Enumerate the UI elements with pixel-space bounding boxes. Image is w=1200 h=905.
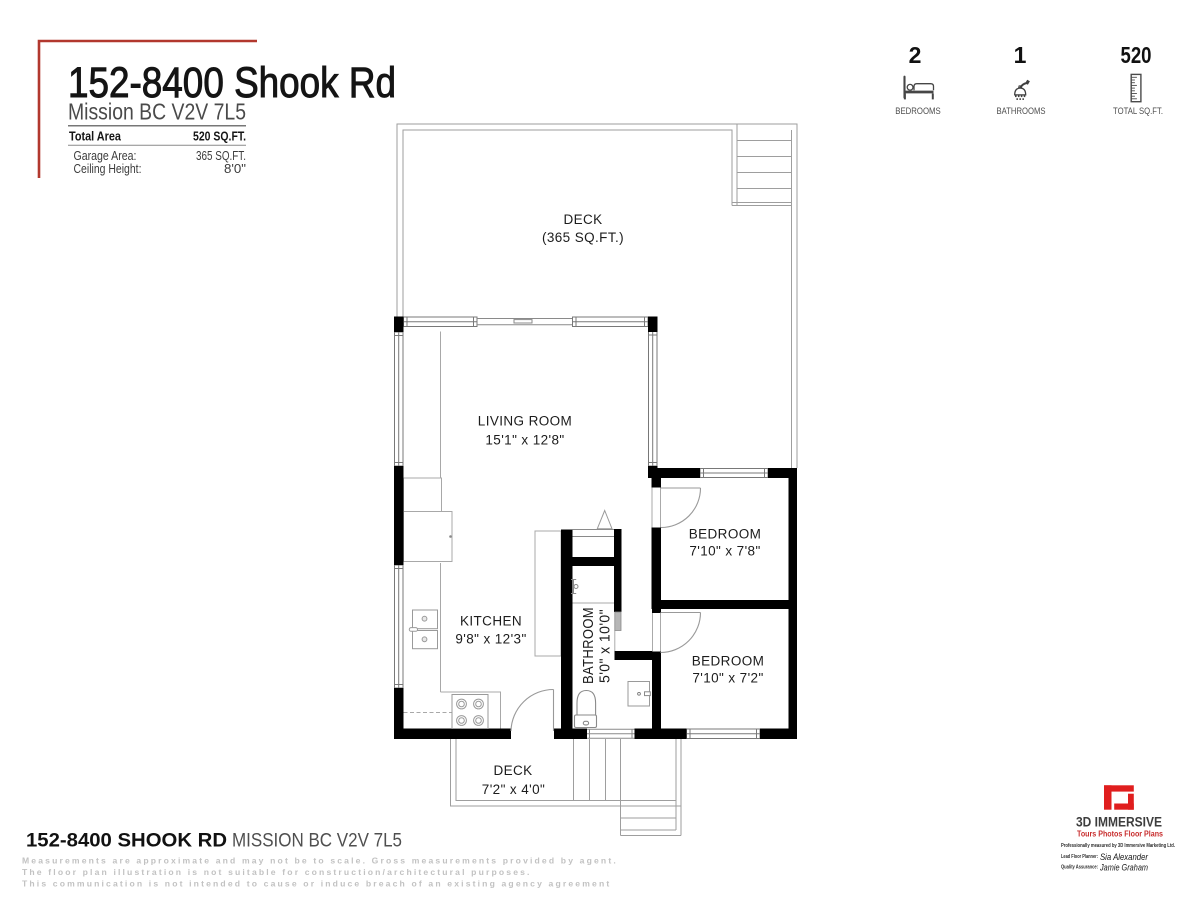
svg-text:520 SQ.FT.: 520 SQ.FT. [193, 130, 246, 144]
svg-text:LIVING ROOM: LIVING ROOM [478, 414, 572, 429]
svg-text:DECK: DECK [563, 212, 602, 227]
svg-text:TOTAL SQ.FT.: TOTAL SQ.FT. [1113, 106, 1163, 116]
svg-text:Measurements are approximate a: Measurements are approximate and may not… [22, 856, 618, 866]
svg-text:KITCHEN: KITCHEN [460, 614, 522, 629]
svg-text:7'10" x 7'2": 7'10" x 7'2" [692, 671, 763, 686]
svg-text:3D IMMERSIVE: 3D IMMERSIVE [1076, 815, 1162, 830]
svg-text:BEDROOM: BEDROOM [692, 654, 765, 669]
svg-text:15'1" x 12'8": 15'1" x 12'8" [485, 433, 564, 448]
svg-text:7'2" x 4'0": 7'2" x 4'0" [482, 782, 545, 797]
svg-text:(365 SQ.FT.): (365 SQ.FT.) [542, 230, 624, 245]
svg-text:The floor plan illustration is: The floor plan illustration is not suita… [22, 867, 532, 877]
svg-text:5'0" x 10'0": 5'0" x 10'0" [598, 609, 614, 683]
svg-text:2: 2 [909, 42, 922, 68]
svg-text:This communication is not inte: This communication is not intended to ca… [22, 879, 611, 889]
svg-text:BEDROOMS: BEDROOMS [895, 106, 941, 116]
svg-text:Mission BC V2V 7L5: Mission BC V2V 7L5 [68, 99, 246, 125]
svg-text:8'0": 8'0" [224, 162, 246, 176]
svg-text:7'10" x 7'8": 7'10" x 7'8" [689, 544, 760, 559]
svg-text:BATHROOMS: BATHROOMS [997, 106, 1046, 116]
svg-text:Sia Alexander: Sia Alexander [1100, 852, 1149, 862]
svg-text:BATHROOM: BATHROOM [581, 607, 597, 684]
svg-text:DECK: DECK [493, 763, 532, 778]
svg-text:Tours Photos Floor Plans: Tours Photos Floor Plans [1077, 830, 1163, 839]
svg-text:Quality Assurance:: Quality Assurance: [1061, 865, 1098, 871]
svg-text:Lead Floor Planner:: Lead Floor Planner: [1061, 854, 1098, 860]
svg-text:Jamie Graham: Jamie Graham [1099, 863, 1148, 873]
svg-text:Professionally measured by 3D: Professionally measured by 3D Immersive … [1061, 843, 1175, 849]
svg-text:BEDROOM: BEDROOM [689, 527, 762, 542]
svg-text:520: 520 [1121, 42, 1152, 68]
svg-text:Ceiling Height:: Ceiling Height: [74, 162, 142, 176]
svg-text:152-8400 SHOOK RD: 152-8400 SHOOK RD [26, 830, 227, 852]
svg-text:MISSION BC V2V 7L5: MISSION BC V2V 7L5 [232, 830, 402, 852]
svg-text:Total Area: Total Area [69, 130, 122, 144]
svg-text:1: 1 [1014, 42, 1027, 68]
svg-text:9'8" x 12'3": 9'8" x 12'3" [455, 632, 526, 647]
